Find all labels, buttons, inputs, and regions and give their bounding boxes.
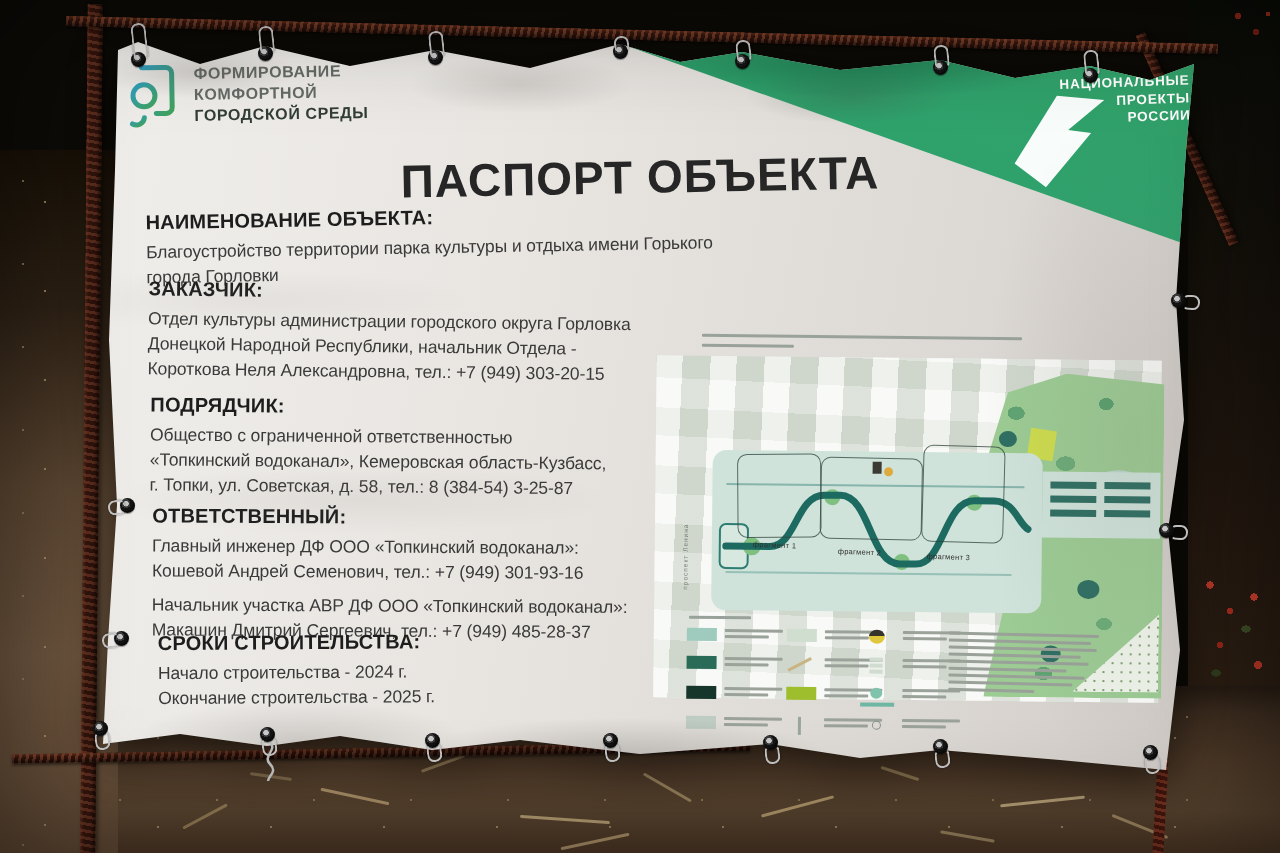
plan-pergola-bar: [1050, 495, 1096, 502]
legend-label-bar: [725, 635, 769, 638]
legend-label-bar: [902, 719, 960, 722]
legend-label-bar: [825, 636, 869, 639]
plan-pavilion-circle: [1077, 580, 1099, 599]
plan-title-bar: [702, 334, 1022, 340]
legend-label-bar: [724, 693, 768, 696]
legend-stack-bar: [870, 664, 883, 668]
wire-hook: [1171, 525, 1189, 541]
legend-label-bar: [902, 695, 946, 698]
wire-hook: [428, 31, 446, 59]
fragment-label-1: фрагмент 1: [753, 540, 797, 551]
legend-swatch: [786, 687, 816, 700]
wire-hook: [101, 632, 119, 648]
fragment-label-2: фрагмент 2: [838, 547, 882, 558]
legend-label-bar: [825, 664, 869, 667]
wire-hook: [933, 45, 950, 69]
wire-hook: [613, 36, 630, 53]
legend-label-bar: [724, 723, 768, 726]
page-title: ПАСПОРТ ОБЪЕКТА: [340, 144, 941, 210]
legend-vline: [798, 717, 801, 735]
legend-stack-bar: [870, 658, 883, 662]
wire-hook: [1183, 295, 1201, 311]
fragment-outline-1: [737, 453, 822, 538]
legend-label-bar: [903, 637, 947, 640]
legend-swatch: [687, 628, 717, 641]
program-logo-line3: ГОРОДСКОЙ СРЕДЫ: [194, 102, 368, 126]
program-logo-text: ФОРМИРОВАНИЕ КОМФОРТНОЙ ГОРОДСКОЙ СРЕДЫ: [193, 56, 368, 135]
site-plan: проспект Ленина: [648, 327, 1167, 728]
plan-pavilion-circle: [999, 431, 1017, 447]
passport-banner: НАЦИОНАЛЬНЫЕ ПРОЕКТЫ РОССИИ ФОРМИРОВАНИЕ: [0, 0, 1280, 853]
legend-label-bar: [725, 663, 769, 666]
s-hook-chain: [260, 742, 280, 782]
legend-dot: [872, 721, 881, 730]
plan-street-label: проспект Ленина: [681, 450, 689, 590]
legend-pond-bar: [860, 703, 894, 707]
national-projects-logo-text: НАЦИОНАЛЬНЫЕ ПРОЕКТЫ РОССИИ: [1039, 71, 1191, 129]
legend-swatch: [687, 656, 717, 669]
wire-hook: [258, 26, 276, 55]
outdoor-scene: НАЦИОНАЛЬНЫЕ ПРОЕКТЫ РОССИИ ФОРМИРОВАНИЕ: [0, 0, 1280, 853]
program-logo-line1: ФОРМИРОВАНИЕ: [193, 60, 367, 84]
legend-label-bar: [824, 724, 868, 727]
program-logo: ФОРМИРОВАНИЕ КОМФОРТНОЙ ГОРОДСКОЙ СРЕДЫ: [121, 56, 368, 136]
plan-pergola-bar: [1104, 496, 1150, 503]
legend-title-bar: [689, 616, 751, 620]
legend-fountain: [869, 630, 885, 644]
legend-label-bar: [903, 665, 947, 668]
fragment-outline-3: [921, 444, 1006, 543]
plan-pergola-bar: [1050, 481, 1096, 488]
wire-hook: [735, 39, 752, 63]
section-object-name: НАИМЕНОВАНИЕ ОБЪЕКТА: Благоустройство те…: [145, 201, 746, 290]
legend-pond: [870, 688, 882, 699]
legend-label-bar: [902, 725, 946, 728]
plan-boulevard-extension: [1042, 471, 1161, 538]
plan-pergola-bar: [1104, 482, 1150, 489]
plan-pergola-bar: [1050, 509, 1096, 516]
legend-swatch: [787, 629, 817, 642]
legend-swatch: [686, 686, 716, 699]
plan-subtitle-bar: [702, 344, 794, 347]
wire-hook: [1083, 49, 1101, 77]
wire-hook: [107, 499, 125, 515]
legend-label-bar: [824, 694, 868, 697]
plan-pergola-bar: [1104, 510, 1150, 517]
tree-house-icon: [121, 59, 180, 136]
plan-legend-paragraph: [652, 327, 1167, 332]
banner-wrap: НАЦИОНАЛЬНЫЕ ПРОЕКТЫ РОССИИ ФОРМИРОВАНИЕ: [0, 0, 1280, 853]
legend-label-bar: [724, 717, 782, 720]
legend-stack-bar: [869, 670, 882, 674]
plan-legend: [652, 327, 1167, 332]
fragment-outline-2: [820, 457, 924, 541]
section-heading: ЗАКАЗЧИК:: [148, 277, 748, 307]
legend-swatch: [686, 716, 716, 729]
fragment-label-3: фрагмент 3: [927, 552, 971, 563]
section-heading: НАИМЕНОВАНИЕ ОБЪЕКТА:: [145, 201, 745, 234]
program-logo-line2: КОМФОРТНОЙ: [194, 81, 368, 105]
